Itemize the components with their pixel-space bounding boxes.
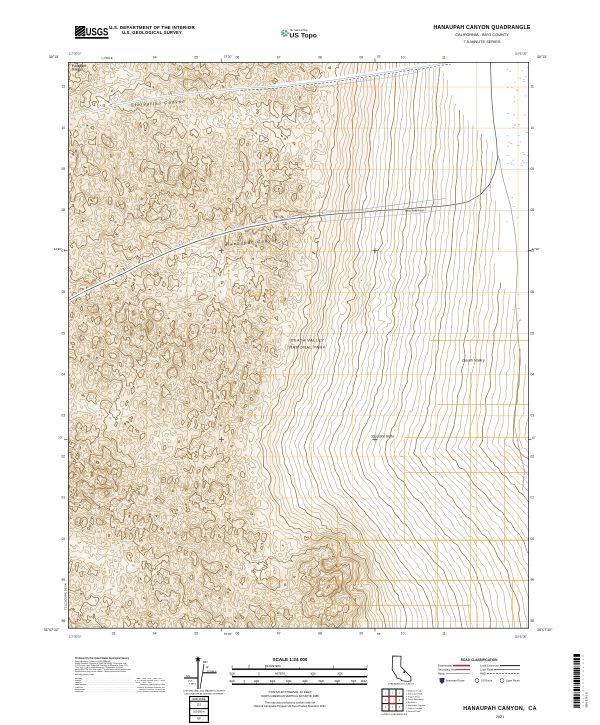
svg-text:02: 02 (61, 455, 65, 459)
svg-text:08: 08 (318, 632, 322, 636)
svg-text:116°52'30": 116°52'30" (515, 635, 527, 639)
svg-text:11: 11 (531, 85, 535, 89)
svg-text:07: 07 (61, 249, 65, 253)
svg-text:117°00'00": 117°00'00" (69, 635, 81, 639)
svg-text:57'30": 57'30" (224, 55, 232, 59)
svg-text:National Geospatial Program US: National Geospatial Program US Topo Prod… (254, 704, 327, 708)
svg-text:1: 1 (583, 706, 585, 708)
svg-text:98: 98 (61, 619, 65, 623)
svg-text:5: 5 (399, 699, 401, 702)
svg-text:UTM GRID AND 2021 MAGNETIC NOR: UTM GRID AND 2021 MAGNETIC NORTH (183, 690, 225, 693)
svg-text:01: 01 (531, 496, 535, 500)
svg-text:1: 1 (333, 665, 335, 668)
svg-text:2: 2 (583, 679, 585, 681)
svg-text:4000: 4000 (302, 680, 308, 683)
svg-text:2000: 2000 (270, 680, 276, 683)
svg-text:03: 03 (61, 414, 65, 418)
svg-text:0°21': 0°21' (188, 681, 194, 683)
svg-text:55': 55' (377, 632, 381, 636)
svg-text:6000: 6000 (335, 680, 341, 683)
svg-text:09: 09 (360, 632, 364, 636)
svg-text:1000: 1000 (229, 673, 235, 676)
svg-text:06: 06 (531, 290, 535, 294)
svg-text:57'30": 57'30" (224, 632, 232, 636)
svg-text:0: 0 (258, 673, 260, 676)
svg-text:7000: 7000 (351, 680, 357, 683)
svg-text:State Route: State Route (506, 679, 520, 683)
svg-text:KILOMETERS: KILOMETERS (265, 665, 281, 668)
svg-text:06: 06 (61, 290, 65, 294)
svg-text:11: 11 (442, 56, 446, 60)
svg-text:12'30": 12'30" (532, 247, 540, 251)
svg-text:06: 06 (236, 632, 240, 636)
svg-text:4 Devils Speedway: 4 Devils Speedway (406, 699, 425, 701)
svg-text:NORTH AMERICAN VERTICAL DATUM: NORTH AMERICAN VERTICAL DATUM OF 1988 (261, 694, 319, 698)
svg-text:2: 2 (366, 665, 368, 668)
svg-text:SCALE 1:24 000: SCALE 1:24 000 (273, 657, 308, 662)
svg-text:US Route: US Route (481, 679, 493, 683)
svg-text:8: 8 (583, 671, 585, 673)
svg-text:FEET: FEET (361, 680, 368, 683)
svg-text:1000: 1000 (310, 673, 316, 676)
svg-text:QUADRANGLE LOCATION: QUADRANGLE LOCATION (388, 683, 414, 686)
svg-text:12'30": 12'30" (54, 247, 62, 251)
svg-text:117°00'00": 117°00'00" (69, 52, 81, 56)
svg-text:1 Wildrose Peak: 1 Wildrose Peak (406, 690, 422, 693)
svg-text:04: 04 (153, 56, 157, 60)
svg-text:0: 0 (583, 655, 585, 657)
svg-text:10: 10 (401, 632, 405, 636)
svg-text:2 Telescope Peak: 2 Telescope Peak (406, 693, 423, 695)
svg-text:12°: 12° (206, 666, 210, 669)
svg-text:99: 99 (531, 578, 535, 582)
svg-text:Interstate Route: Interstate Route (446, 679, 465, 683)
svg-text:5: 5 (583, 675, 585, 677)
svg-text:3 Rogers Peak: 3 Rogers Peak (406, 695, 421, 698)
svg-text:07: 07 (277, 56, 281, 60)
svg-text:4: 4 (583, 702, 585, 704)
svg-text:10: 10 (401, 56, 405, 60)
svg-text:0: 0 (583, 694, 585, 696)
svg-text:5 Badwater: 5 Badwater (406, 701, 417, 704)
svg-text:09: 09 (61, 167, 65, 171)
svg-text:08: 08 (531, 208, 535, 212)
svg-text:3: 3 (583, 691, 585, 693)
svg-text:1: 1 (385, 692, 387, 695)
svg-text:Local Connector: Local Connector (480, 664, 499, 668)
svg-text:0: 0 (243, 680, 245, 683)
svg-text:05: 05 (531, 331, 535, 335)
svg-text:3: 3 (399, 692, 401, 695)
svg-text:11S: 11S (196, 702, 201, 706)
svg-text:6: 6 (385, 706, 387, 709)
svg-text:6: 6 (583, 687, 585, 689)
svg-text:8 Funeral Peak: 8 Funeral Peak (406, 710, 421, 713)
svg-text:10: 10 (61, 126, 65, 130)
svg-text:1000: 1000 (229, 680, 235, 683)
svg-text:Expressway: Expressway (438, 664, 453, 668)
svg-text:METERS: METERS (275, 673, 285, 676)
svg-text:ROAD CLASSIFICATION: ROAD CLASSIFICATION (461, 658, 498, 662)
svg-text:MN: MN (203, 660, 207, 664)
svg-text:03: 03 (112, 632, 116, 636)
svg-text:Ramp: Ramp (438, 672, 445, 676)
svg-text:00: 00 (531, 537, 535, 541)
svg-text:Local Road: Local Road (480, 668, 494, 672)
svg-text:.5: .5 (248, 665, 251, 668)
svg-text:CONTOUR INTERVAL 40 FEET: CONTOUR INTERVAL 40 FEET (269, 690, 312, 694)
svg-text:07: 07 (277, 632, 281, 636)
svg-text:11: 11 (442, 632, 446, 636)
svg-text:55': 55' (377, 55, 381, 59)
svg-text:36°07'30": 36°07'30" (44, 628, 60, 632)
svg-text:10: 10 (531, 126, 535, 130)
svg-text:Secondary Hwy: Secondary Hwy (438, 668, 457, 672)
svg-text:4: 4 (583, 663, 585, 665)
svg-text:4WD: 4WD (480, 672, 486, 676)
svg-text:213 MILS: 213 MILS (207, 671, 217, 673)
svg-text:5000: 5000 (318, 680, 324, 683)
svg-text:7: 7 (583, 698, 585, 700)
svg-text:GN: GN (186, 674, 190, 678)
svg-text:09: 09 (531, 167, 535, 171)
svg-text:05: 05 (194, 632, 198, 636)
svg-text:08: 08 (318, 56, 322, 60)
svg-text:36°15': 36°15' (49, 55, 59, 59)
svg-text:4: 4 (385, 699, 387, 702)
svg-text:04: 04 (61, 372, 65, 376)
svg-text:ADJOINING QUADRANGLES: ADJOINING QUADRANGLES (381, 713, 408, 716)
svg-text:98: 98 (531, 619, 535, 623)
svg-text:99: 99 (61, 578, 65, 582)
svg-text:100 000-m: 100 000-m (193, 710, 204, 713)
svg-text:7: 7 (392, 706, 394, 709)
svg-text:116°52'30": 116°52'30" (515, 52, 527, 56)
svg-text:MP: MP (197, 717, 201, 720)
svg-text:09: 09 (360, 56, 364, 60)
svg-text:²₀⁵000mE: ²₀⁵000mE (101, 56, 113, 60)
svg-text:10': 10' (58, 436, 62, 440)
svg-text:36°15': 36°15' (537, 55, 547, 59)
svg-text:10': 10' (532, 436, 536, 440)
svg-text:05: 05 (194, 56, 198, 60)
svg-text:2: 2 (392, 692, 394, 695)
svg-text:1: 1 (231, 665, 233, 668)
svg-text:36°07'30": 36°07'30" (537, 628, 553, 632)
svg-text:03: 03 (531, 414, 535, 418)
svg-text:3000: 3000 (286, 680, 292, 683)
svg-text:1: 1 (583, 667, 585, 669)
svg-text:2000: 2000 (337, 673, 343, 676)
svg-text:00: 00 (61, 537, 65, 541)
svg-text:ISBN 978-1-6: ISBN 978-1-6 (585, 692, 589, 708)
svg-text:04: 04 (531, 372, 535, 376)
svg-text:1000: 1000 (254, 680, 260, 683)
svg-text:06: 06 (236, 56, 240, 60)
svg-text:9: 9 (583, 683, 585, 685)
svg-text:05: 05 (61, 331, 65, 335)
svg-text:02: 02 (531, 455, 535, 459)
svg-text:8: 8 (399, 706, 401, 709)
svg-text:TELESCOPE PEAK: TELESCOPE PEAK (64, 583, 68, 610)
svg-text:11: 11 (62, 85, 66, 89)
svg-text:7: 7 (583, 659, 585, 661)
svg-text:04: 04 (153, 632, 157, 636)
svg-text:6 MILS: 6 MILS (189, 683, 196, 685)
svg-text:01: 01 (61, 496, 65, 500)
svg-text:08: 08 (61, 208, 65, 212)
svg-text:GRID ZONE: GRID ZONE (192, 697, 206, 700)
